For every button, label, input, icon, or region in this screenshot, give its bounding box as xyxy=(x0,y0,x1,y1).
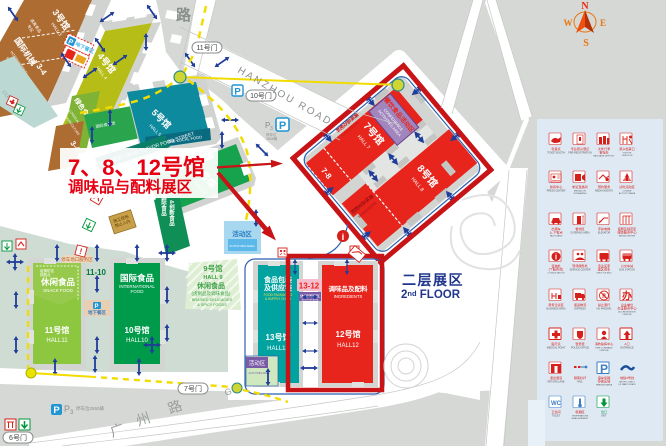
svg-text:P: P xyxy=(600,362,608,376)
svg-text:HALL12: HALL12 xyxy=(337,343,359,349)
svg-text:MEASUREMENT: MEASUREMENT xyxy=(571,417,589,420)
svg-text:MEDIA CENTER: MEDIA CENTER xyxy=(619,235,636,238)
svg-text:观众检票口: 观众检票口 xyxy=(619,146,634,151)
svg-text:P: P xyxy=(279,120,286,132)
svg-text:HALL10: HALL10 xyxy=(126,338,148,344)
svg-text:地铁3号线: 地铁3号线 xyxy=(620,375,634,380)
svg-text:BUS STATION: BUS STATION xyxy=(619,269,635,272)
svg-text:P: P xyxy=(234,87,241,98)
svg-text:上,下客点: 上,下客点 xyxy=(549,230,562,235)
svg-text:SNACK FOOD: SNACK FOOD xyxy=(43,288,74,293)
svg-text:7、8、12号馆: 7、8、12号馆 xyxy=(68,155,205,180)
svg-text:现场服务处: 现场服务处 xyxy=(572,263,587,268)
svg-text:WC: WC xyxy=(551,401,562,407)
svg-text:TOILET: TOILET xyxy=(552,415,561,418)
svg-text:休闲食品: 休闲食品 xyxy=(196,281,225,290)
svg-text:调味品与配料展区: 调味品与配料展区 xyxy=(68,177,193,196)
svg-text:二层展区: 二层展区 xyxy=(402,272,464,288)
svg-text:速运物流: 速运物流 xyxy=(574,302,586,307)
svg-text:OF PARTICIPATE: OF PARTICIPATE xyxy=(618,383,636,386)
svg-text:停放区域: 停放区域 xyxy=(598,379,612,384)
svg-text:试吃活动区: 试吃活动区 xyxy=(619,184,634,189)
svg-text:退出通道: 退出通道 xyxy=(550,375,562,380)
svg-text:BAGGAGE DEPOSIT: BAGGAGE DEPOSIT xyxy=(593,155,615,158)
svg-text:医疗点: 医疗点 xyxy=(551,341,560,346)
svg-text:9号馆: 9号馆 xyxy=(203,263,223,273)
svg-text:停车位2550辆: 停车位2550辆 xyxy=(76,405,105,412)
svg-text:办证服务中心: 办证服务中心 xyxy=(617,306,637,311)
svg-text:CENTER: CENTER xyxy=(623,314,632,316)
svg-text:11号馆: 11号馆 xyxy=(45,325,69,335)
svg-text:CONSULTATION: CONSULTATION xyxy=(548,272,565,275)
svg-text:SHUTTLE BUS: SHUTTLE BUS xyxy=(596,273,612,275)
svg-text:PRE-REGISTRATION: PRE-REGISTRATION xyxy=(568,152,592,155)
svg-text:P: P xyxy=(53,405,60,416)
svg-text:调味品及配料: 调味品及配料 xyxy=(329,284,369,293)
svg-text:MEDIA AGENTS: MEDIA AGENTS xyxy=(595,190,613,193)
svg-text:消防指挥中心: 消防指挥中心 xyxy=(595,341,614,346)
svg-text:2808辆: 2808辆 xyxy=(266,136,278,141)
svg-text:出口: 出口 xyxy=(601,409,607,414)
svg-text:BRAISED DELICACIES: BRAISED DELICACIES xyxy=(192,298,233,302)
svg-text:7号门: 7号门 xyxy=(184,384,202,393)
svg-text:10号馆: 10号馆 xyxy=(125,325,150,335)
svg-text:13-12: 13-12 xyxy=(299,282,320,291)
svg-text:新闻中心: 新闻中心 xyxy=(550,184,562,189)
svg-text:吸烟区: 吸烟区 xyxy=(575,409,584,414)
svg-text:E: E xyxy=(600,18,606,28)
svg-text:NO PASSING: NO PASSING xyxy=(597,308,612,311)
svg-text:STREAMING: STREAMING xyxy=(573,192,586,195)
svg-text:CHECK-IN: CHECK-IN xyxy=(622,155,633,157)
svg-text:商务洽谈区: 商务洽谈区 xyxy=(548,302,563,307)
svg-text:卫生间: 卫生间 xyxy=(551,409,560,414)
svg-text:TAXI STAND: TAXI STAND xyxy=(550,235,563,238)
svg-text:PARKING AREA: PARKING AREA xyxy=(596,384,613,387)
svg-text:预约服务: 预约服务 xyxy=(598,184,610,189)
svg-text:12号馆: 12号馆 xyxy=(336,329,361,339)
svg-text:寄存处: 寄存处 xyxy=(599,150,608,155)
svg-text:办: 办 xyxy=(622,290,632,303)
svg-text:i: i xyxy=(555,253,557,262)
svg-text:ACTIVITY AREA: ACTIVITY AREA xyxy=(619,192,636,195)
svg-text:活动区: 活动区 xyxy=(232,229,252,238)
svg-text:ACTIVITIES AREA: ACTIVITIES AREA xyxy=(249,372,270,375)
svg-text:N: N xyxy=(581,1,589,12)
svg-text:ACTIVITIES AREA: ACTIVITIES AREA xyxy=(302,299,319,302)
svg-text:路: 路 xyxy=(176,6,192,24)
svg-text:HALL 9: HALL 9 xyxy=(203,275,222,281)
svg-text:A口: A口 xyxy=(624,342,629,346)
svg-text:11-10: 11-10 xyxy=(86,268,107,277)
svg-text:BUSINESS AREA: BUSINESS AREA xyxy=(546,308,566,311)
svg-text:PRESS CENTER: PRESS CENTER xyxy=(547,190,566,193)
svg-text:警务室: 警务室 xyxy=(575,341,584,346)
svg-text:隔离栏杆: 隔离栏杆 xyxy=(574,375,586,380)
svg-text:(卤制品及调味食品): (卤制品及调味食品) xyxy=(192,290,231,297)
svg-text:地下餐区: 地下餐区 xyxy=(88,309,106,316)
svg-text:i: i xyxy=(342,232,345,243)
svg-text:公交车站: 公交车站 xyxy=(621,263,633,268)
svg-text:S: S xyxy=(583,38,589,49)
svg-text:专业观众登记: 专业观众登记 xyxy=(571,146,590,151)
svg-text:禁止通行: 禁止通行 xyxy=(598,302,610,307)
svg-text:SERVICE CENTER: SERVICE CENTER xyxy=(570,269,591,272)
svg-text:6号门: 6号门 xyxy=(9,433,27,442)
svg-text:TICKET BOOTH: TICKET BOOTH xyxy=(547,152,565,155)
svg-text:ELEVATOR: ELEVATOR xyxy=(598,232,611,235)
svg-text:休闲调味区: 休闲调味区 xyxy=(300,293,320,299)
svg-text:休闲食品: 休闲食品 xyxy=(40,277,76,287)
svg-text:制证直播间: 制证直播间 xyxy=(572,184,587,189)
svg-text:FOOD: FOOD xyxy=(131,289,145,294)
svg-text:CATERING AREA: CATERING AREA xyxy=(570,232,590,235)
svg-text:媒体服务中心: 媒体服务中心 xyxy=(617,230,637,235)
svg-text:MEDICAL POINT: MEDICAL POINT xyxy=(547,347,566,350)
svg-text:EXIT: EXIT xyxy=(601,415,607,418)
svg-text:售票点: 售票点 xyxy=(551,146,560,151)
svg-text:停车场口服务区: 停车场口服务区 xyxy=(61,256,93,263)
svg-text:W: W xyxy=(564,18,573,28)
svg-text:餐饮区: 餐饮区 xyxy=(575,226,584,231)
svg-text:RAIL: RAIL xyxy=(577,381,583,384)
svg-text:("i"服务台): ("i"服务台) xyxy=(549,267,564,272)
svg-text:国际食品: 国际食品 xyxy=(120,273,155,283)
svg-text:11号门: 11号门 xyxy=(196,43,217,52)
svg-text:ENTRANCE: ENTRANCE xyxy=(620,347,634,350)
svg-text:CENTER: CENTER xyxy=(600,350,609,352)
svg-text:ACTIVITIES AREA: ACTIVITIES AREA xyxy=(229,244,254,248)
svg-text:手扶电梯: 手扶电梯 xyxy=(598,226,610,231)
svg-text:RETURN LANE: RETURN LANE xyxy=(548,381,565,384)
svg-text:观区用车: 观区用车 xyxy=(598,267,611,272)
svg-text:& SPICY FOODS: & SPICY FOODS xyxy=(197,303,227,307)
svg-text:HALL11: HALL11 xyxy=(46,338,68,344)
svg-text:EXPRESS: EXPRESS xyxy=(574,308,586,311)
svg-text:POLICE OFFICE: POLICE OFFICE xyxy=(571,347,590,350)
svg-text:活动区: 活动区 xyxy=(249,359,266,367)
svg-text:INGREDIENTS: INGREDIENTS xyxy=(334,294,363,299)
svg-text:3: 3 xyxy=(270,126,273,132)
